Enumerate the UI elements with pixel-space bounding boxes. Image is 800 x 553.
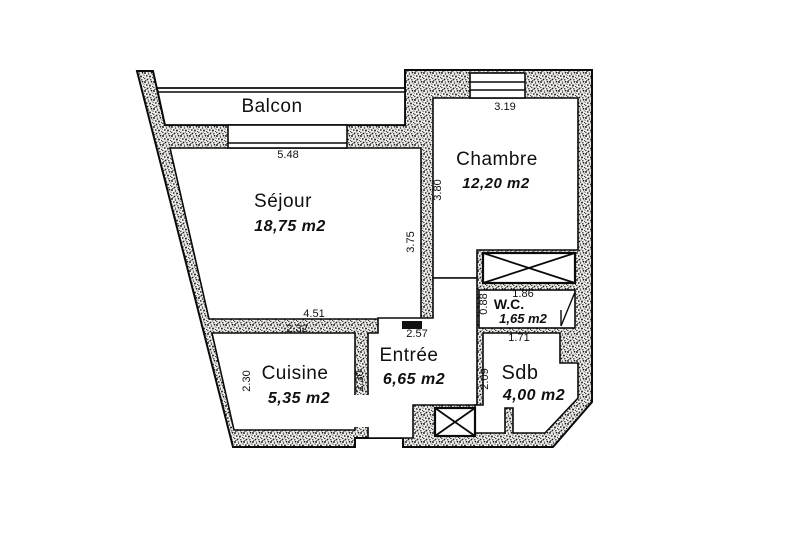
dim-sejour-depth: 3.75 (405, 231, 417, 252)
closet-chambre (483, 253, 575, 283)
area-sejour: 18,75 m2 (254, 218, 326, 235)
dim-cuisine-right: 2.30 (354, 370, 366, 391)
window-balcony (228, 125, 347, 148)
dim-cuisine-width: 2.32 (286, 323, 307, 335)
dim-balcony-window: 5.48 (277, 149, 298, 161)
dim-chambre-window: 3.19 (494, 101, 515, 113)
dim-cuisine-left: 2.30 (241, 370, 253, 391)
closet-entree (435, 408, 475, 436)
dim-wc-width: 1.86 (512, 288, 533, 300)
dim-sdb-depth: 2.09 (479, 368, 491, 389)
label-balcon: Balcon (241, 96, 302, 117)
floor-plan-drawing: Balcon Séjour 18,75 m2 Chambre 12,20 m2 … (0, 0, 800, 553)
area-sdb: 4,00 m2 (502, 387, 565, 404)
label-entree: Entrée (380, 345, 439, 366)
dim-wc-depth: 0.88 (478, 293, 490, 314)
area-cuisine: 5,35 m2 (268, 390, 330, 407)
label-cuisine: Cuisine (262, 363, 329, 384)
dim-entree-top: 4.51 (303, 308, 324, 320)
label-chambre: Chambre (456, 149, 538, 170)
window-chambre (470, 73, 525, 98)
label-sdb: Sdb (501, 362, 538, 384)
label-sejour: Séjour (254, 191, 312, 212)
dim-chambre-depth: 3.80 (432, 179, 444, 200)
dim-sdb-width: 1.71 (508, 332, 529, 344)
area-entree: 6,65 m2 (383, 371, 445, 388)
area-wc: 1,65 m2 (499, 311, 547, 326)
area-chambre: 12,20 m2 (462, 175, 530, 192)
dim-entree-width: 2.57 (406, 328, 427, 340)
door-cuisine-opening (352, 395, 370, 427)
floor-plan-page: Balcon Séjour 18,75 m2 Chambre 12,20 m2 … (0, 0, 800, 553)
